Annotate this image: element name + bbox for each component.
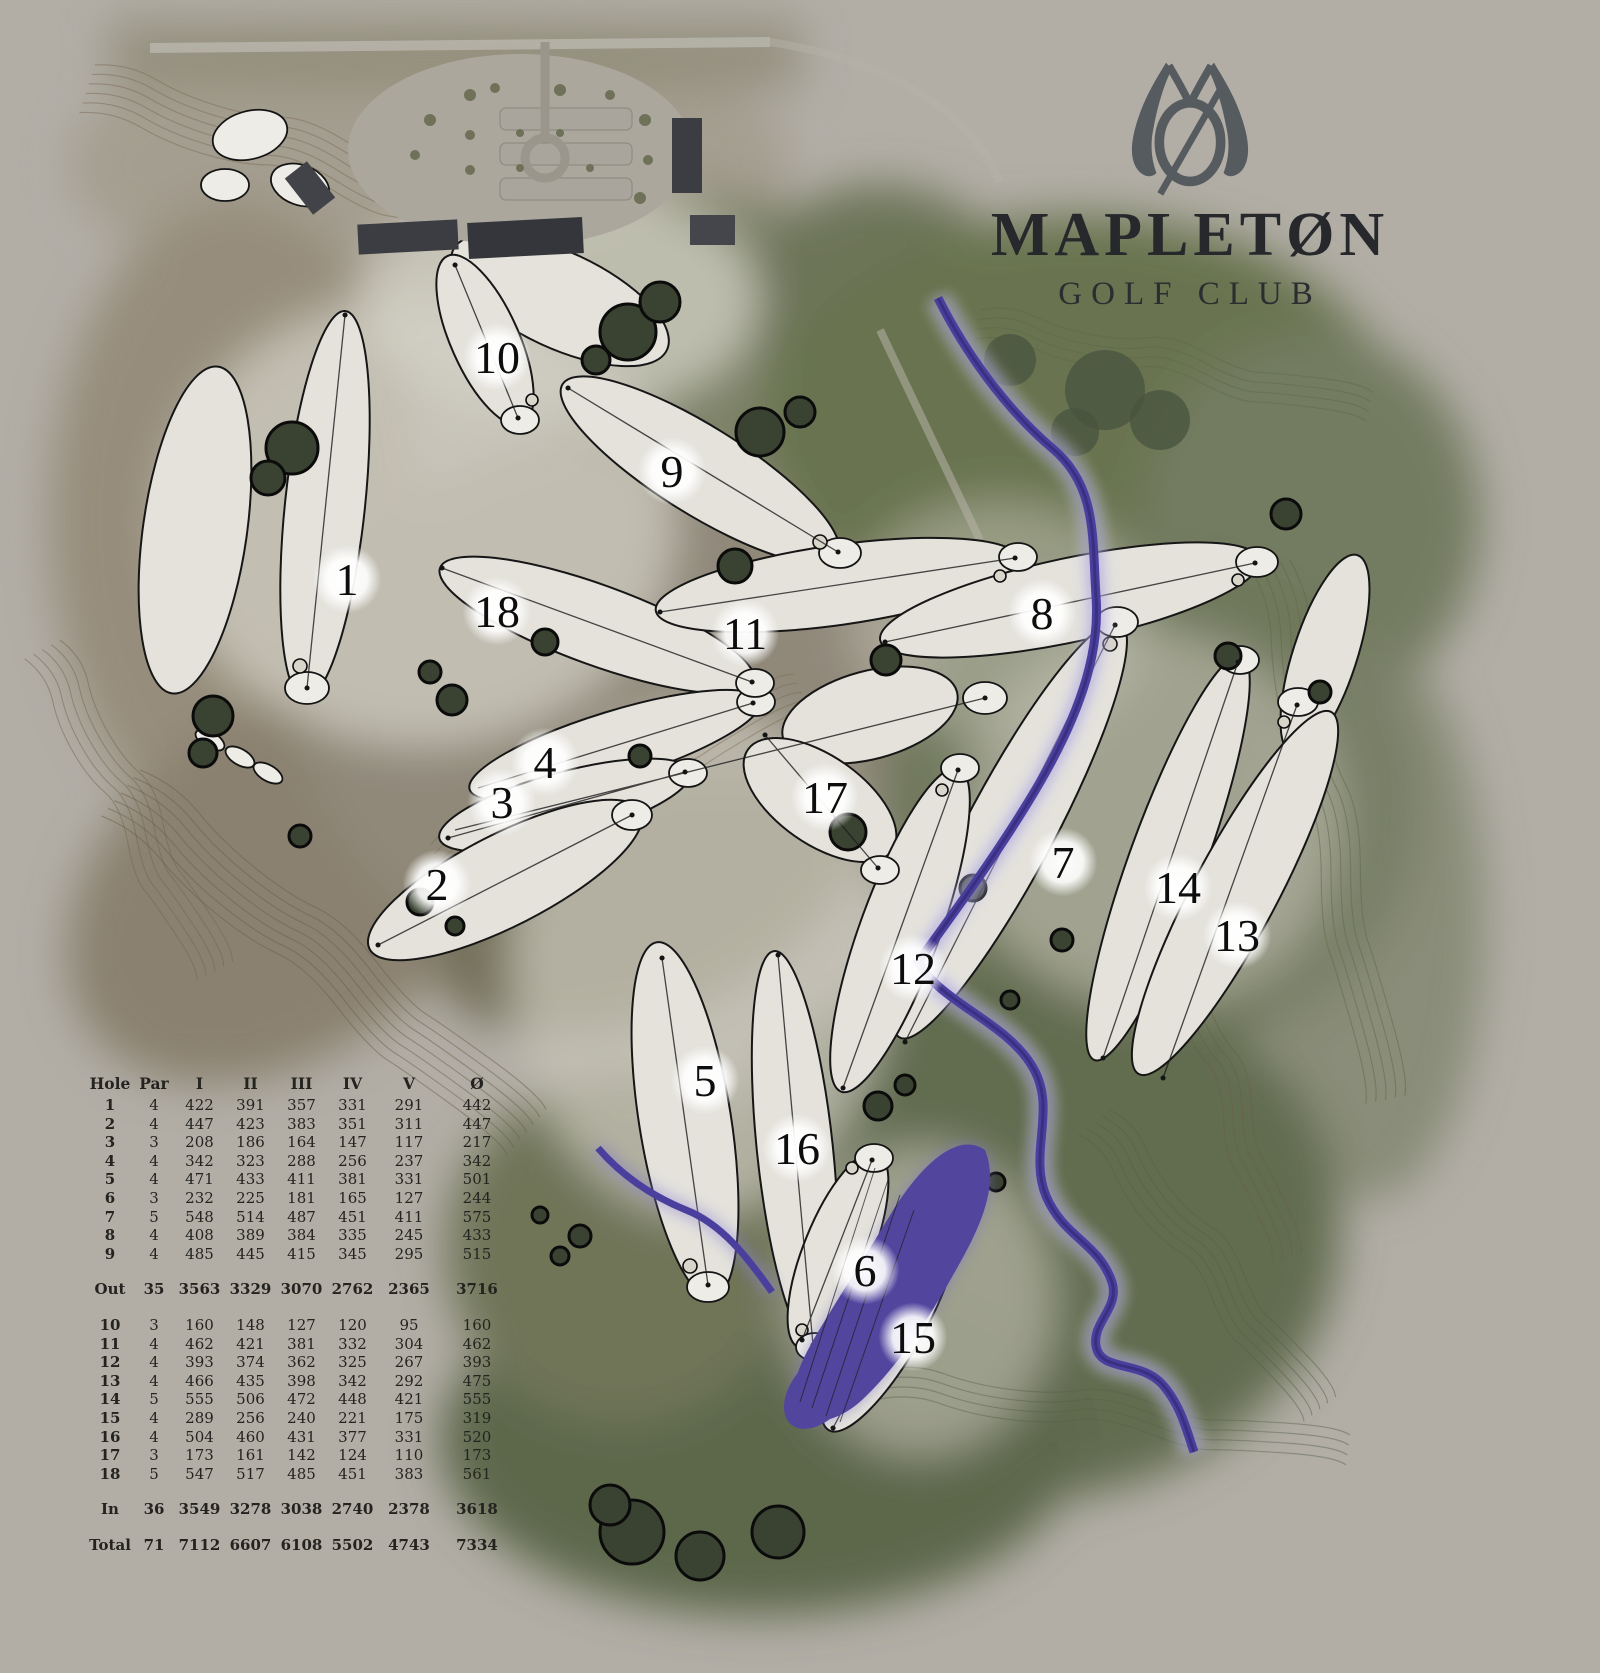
cell: 3 [134,1189,174,1208]
col-tee-3: III [276,1074,327,1096]
col-tee-2: II [225,1074,276,1096]
table-row: 164504460431377331520 [86,1428,514,1447]
cell: 547 [174,1465,225,1484]
cell: 288 [276,1152,327,1171]
table-row: 145555506472448421555 [86,1390,514,1409]
cell: 3 [134,1446,174,1465]
table-row: 10316014812712095160 [86,1299,514,1335]
cell: 460 [225,1428,276,1447]
cell: 208 [174,1133,225,1152]
table-row: 63232225181165127244 [86,1189,514,1208]
cell: 381 [276,1335,327,1354]
cell: 383 [378,1465,440,1484]
cell: 2 [86,1115,134,1134]
cell: 217 [440,1133,514,1152]
table-row: 185547517485451383561 [86,1465,514,1484]
table-row: 33208186164147117217 [86,1133,514,1152]
cell: 411 [378,1208,440,1227]
cell: 421 [378,1390,440,1409]
cell: 389 [225,1226,276,1245]
table-row: 114462421381332304462 [86,1335,514,1354]
cell: 4 [134,1245,174,1264]
cell: 15 [86,1409,134,1428]
cell: 4 [134,1428,174,1447]
cell: 4 [134,1409,174,1428]
cell: 3549 [174,1483,225,1519]
cell: 181 [276,1189,327,1208]
cell: 4 [134,1170,174,1189]
cell: 164 [276,1133,327,1152]
cell: 256 [327,1152,378,1171]
cell: 35 [134,1263,174,1299]
cell: 555 [174,1390,225,1409]
cell: 311 [378,1115,440,1134]
cell: 5502 [327,1519,378,1555]
club-type: GOLF CLUB [960,276,1420,313]
cell: Out [86,1263,134,1299]
cell: 421 [225,1335,276,1354]
cell: 485 [174,1245,225,1264]
cell: 447 [440,1115,514,1134]
cell: 445 [225,1245,276,1264]
cell: 448 [327,1390,378,1409]
cell: 3 [86,1133,134,1152]
cell: 165 [327,1189,378,1208]
cell: 447 [174,1115,225,1134]
cell: 148 [225,1299,276,1335]
cell: 555 [440,1390,514,1409]
cell: 342 [327,1372,378,1391]
cell: 16 [86,1428,134,1447]
cell: 362 [276,1353,327,1372]
table-row: 124393374362325267393 [86,1353,514,1372]
cell: 245 [378,1226,440,1245]
cell: 11 [86,1335,134,1354]
cell: 256 [225,1409,276,1428]
table-row: 75548514487451411575 [86,1208,514,1227]
cell: 36 [134,1483,174,1519]
cell: 142 [276,1446,327,1465]
cell: 12 [86,1353,134,1372]
col-tee-champ: Ø [440,1074,514,1096]
cell: 391 [225,1096,276,1115]
cell: 71 [134,1519,174,1555]
cell: 4 [134,1096,174,1115]
cell: 127 [378,1189,440,1208]
cell: 515 [440,1245,514,1264]
cell: 548 [174,1208,225,1227]
cell: 411 [276,1170,327,1189]
table-row: 84408389384335245433 [86,1226,514,1245]
cell: 4 [134,1372,174,1391]
cell: 451 [327,1465,378,1484]
cell: 5 [134,1390,174,1409]
cell: 575 [440,1208,514,1227]
cell: 514 [225,1208,276,1227]
cell: 506 [225,1390,276,1409]
cell: 331 [378,1170,440,1189]
cell: 2365 [378,1263,440,1299]
table-row: 44342323288256237342 [86,1152,514,1171]
cell: 517 [225,1465,276,1484]
cell: 161 [225,1446,276,1465]
cell: 2740 [327,1483,378,1519]
table-row: 173173161142124110173 [86,1446,514,1465]
cell: 4 [134,1335,174,1354]
cell: 345 [327,1245,378,1264]
cell: 2378 [378,1483,440,1519]
cell: 485 [276,1465,327,1484]
cell: 7112 [174,1519,225,1555]
cell: 393 [440,1353,514,1372]
cell: 4743 [378,1519,440,1555]
cell: 127 [276,1299,327,1335]
cell: 351 [327,1115,378,1134]
cell: 160 [440,1299,514,1335]
cell: 335 [327,1226,378,1245]
table-row: 54471433411381331501 [86,1170,514,1189]
cell: 384 [276,1226,327,1245]
cell: 433 [440,1226,514,1245]
cell: 291 [378,1096,440,1115]
table-row: 24447423383351311447 [86,1115,514,1134]
col-tee-4: IV [327,1074,378,1096]
cell: 240 [276,1409,327,1428]
cell: 381 [327,1170,378,1189]
cell: 431 [276,1428,327,1447]
cell: 160 [174,1299,225,1335]
cell: In [86,1483,134,1519]
table-row: 14422391357331291442 [86,1096,514,1115]
cell: 323 [225,1152,276,1171]
cell: 462 [440,1335,514,1354]
cell: 17 [86,1446,134,1465]
col-par: Par [134,1074,174,1096]
col-tee-5: V [378,1074,440,1096]
table-row: 154289256240221175319 [86,1409,514,1428]
cell: 289 [174,1409,225,1428]
cell: 433 [225,1170,276,1189]
cell: 487 [276,1208,327,1227]
cell: 14 [86,1390,134,1409]
col-tee-1: I [174,1074,225,1096]
cell: 13 [86,1372,134,1391]
cell: 4 [134,1353,174,1372]
cell: 398 [276,1372,327,1391]
table-row: Total71711266076108550247437334 [86,1519,514,1555]
cell: 237 [378,1152,440,1171]
club-name: MAPLETØN [960,200,1420,271]
cell: 3 [134,1133,174,1152]
cell: 3563 [174,1263,225,1299]
cell: 232 [174,1189,225,1208]
cell: 319 [440,1409,514,1428]
scorecard-body: 1442239135733129144224447423383351311447… [86,1096,514,1554]
cell: 415 [276,1245,327,1264]
cell: 383 [276,1115,327,1134]
cell: 501 [440,1170,514,1189]
cell: 7 [86,1208,134,1227]
cell: 7334 [440,1519,514,1555]
cell: 357 [276,1096,327,1115]
cell: 342 [440,1152,514,1171]
cell: 295 [378,1245,440,1264]
cell: 5 [134,1208,174,1227]
cell: 6 [86,1189,134,1208]
cell: 186 [225,1133,276,1152]
cell: 475 [440,1372,514,1391]
cell: 4 [134,1152,174,1171]
table-row: In36354932783038274023783618 [86,1483,514,1519]
cell: 342 [174,1152,225,1171]
cell: 18 [86,1465,134,1484]
club-monogram-logo-icon [1075,48,1305,198]
cell: 451 [327,1208,378,1227]
cell: 423 [225,1115,276,1134]
cell: 3038 [276,1483,327,1519]
cell: 175 [378,1409,440,1428]
cell: 5 [134,1465,174,1484]
cell: 377 [327,1428,378,1447]
cell: 331 [327,1096,378,1115]
cell: 442 [440,1096,514,1115]
scorecard-header-row: Hole Par I II III IV V Ø [86,1074,514,1096]
cell: 9 [86,1245,134,1264]
cell: 3618 [440,1483,514,1519]
cell: 393 [174,1353,225,1372]
col-hole: Hole [86,1074,134,1096]
cell: 561 [440,1465,514,1484]
cell: 466 [174,1372,225,1391]
cell: 408 [174,1226,225,1245]
cell: 120 [327,1299,378,1335]
cell: 267 [378,1353,440,1372]
cell: 4 [134,1115,174,1134]
cell: 110 [378,1446,440,1465]
cell: 292 [378,1372,440,1391]
table-row: 134466435398342292475 [86,1372,514,1391]
cell: 325 [327,1353,378,1372]
cell: 173 [440,1446,514,1465]
cell: 332 [327,1335,378,1354]
cell: 471 [174,1170,225,1189]
cell: 374 [225,1353,276,1372]
cell: Total [86,1519,134,1555]
table-row: Out35356333293070276223653716 [86,1263,514,1299]
cell: 462 [174,1335,225,1354]
cell: 221 [327,1409,378,1428]
cell: 4 [134,1226,174,1245]
cell: 5 [86,1170,134,1189]
table-row: 94485445415345295515 [86,1245,514,1264]
cell: 331 [378,1428,440,1447]
cell: 3070 [276,1263,327,1299]
scorecard-table: Hole Par I II III IV V Ø 144223913573312… [86,1074,514,1554]
cell: 6607 [225,1519,276,1555]
cell: 3 [134,1299,174,1335]
cell: 244 [440,1189,514,1208]
cell: 520 [440,1428,514,1447]
cell: 117 [378,1133,440,1152]
cell: 422 [174,1096,225,1115]
cell: 95 [378,1299,440,1335]
cell: 6108 [276,1519,327,1555]
cell: 10 [86,1299,134,1335]
cell: 8 [86,1226,134,1245]
cell: 3329 [225,1263,276,1299]
cell: 304 [378,1335,440,1354]
cell: 504 [174,1428,225,1447]
cell: 173 [174,1446,225,1465]
cell: 1 [86,1096,134,1115]
scorecard: Hole Par I II III IV V Ø 144223913573312… [86,1074,514,1554]
cell: 4 [86,1152,134,1171]
cell: 124 [327,1446,378,1465]
cell: 435 [225,1372,276,1391]
cell: 225 [225,1189,276,1208]
cell: 472 [276,1390,327,1409]
cell: 3716 [440,1263,514,1299]
cell: 2762 [327,1263,378,1299]
cell: 147 [327,1133,378,1152]
cell: 3278 [225,1483,276,1519]
